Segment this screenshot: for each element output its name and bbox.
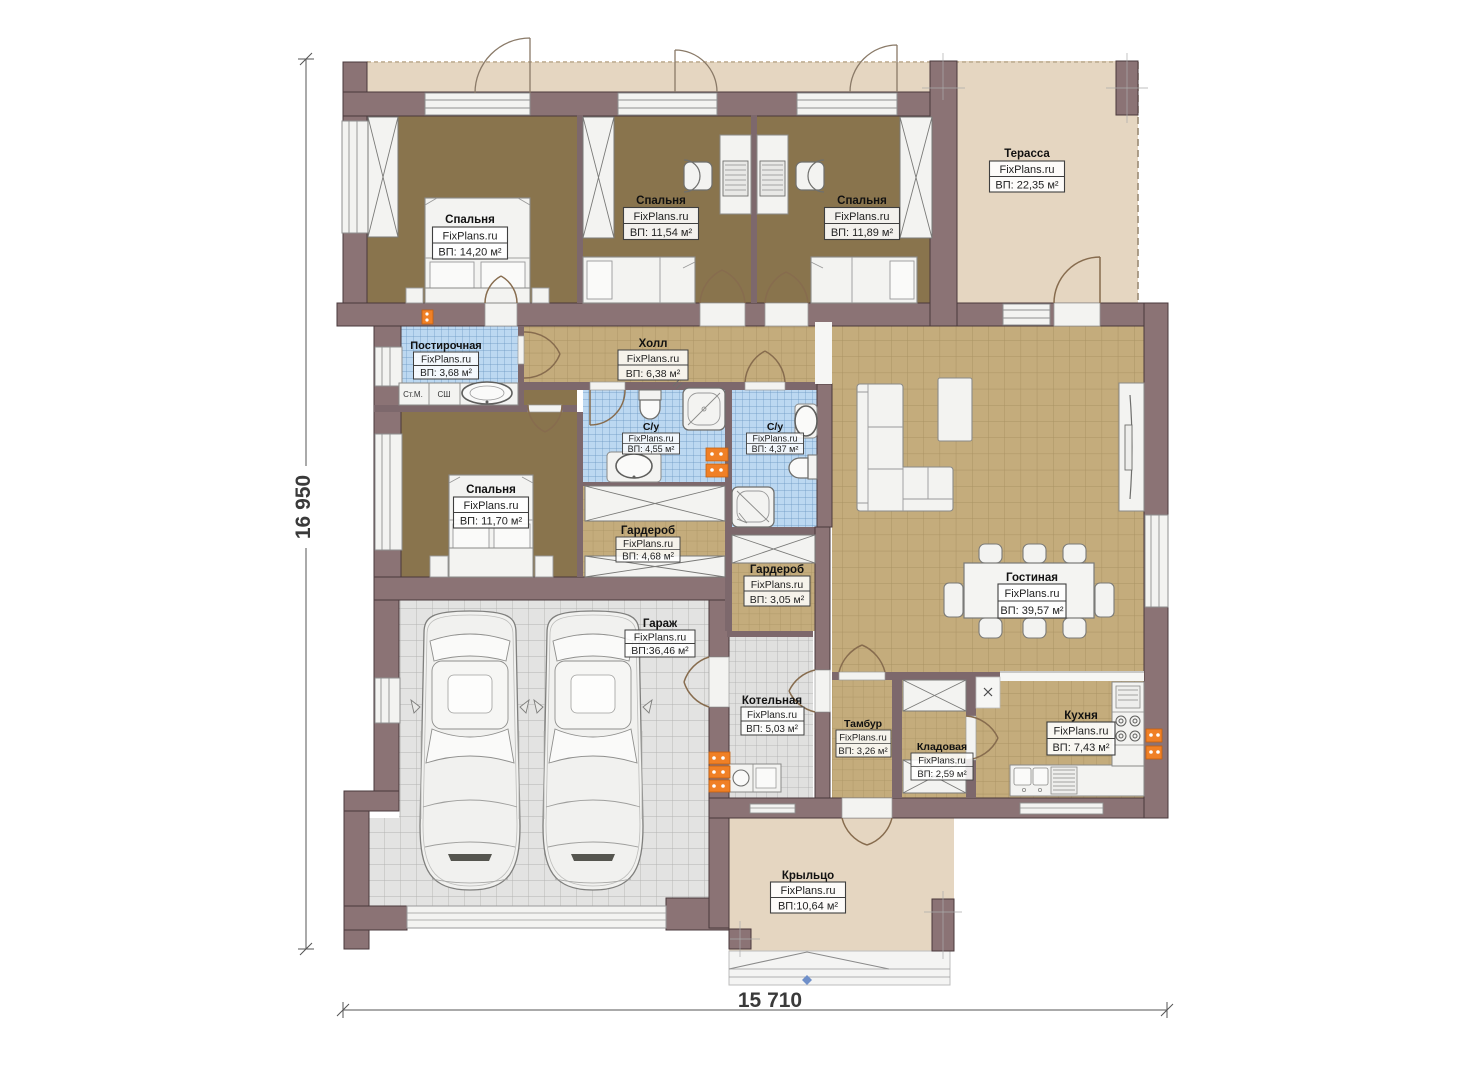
svg-text:С/у: С/у (643, 421, 660, 433)
svg-text:FixPlans.ru: FixPlans.ru (634, 632, 687, 644)
svg-text:ВП: 4,68 м²: ВП: 4,68 м² (622, 552, 675, 563)
svg-text:Гардероб: Гардероб (621, 525, 675, 537)
svg-text:СШ: СШ (437, 390, 450, 399)
svg-text:ВП: 3,68 м²: ВП: 3,68 м² (420, 368, 473, 379)
svg-text:ВП: 39,57 м²: ВП: 39,57 м² (1000, 605, 1064, 617)
svg-text:С/у: С/у (767, 421, 784, 433)
svg-text:FixPlans.ru: FixPlans.ru (780, 885, 835, 897)
svg-text:FixPlans.ru: FixPlans.ru (999, 164, 1054, 176)
svg-text:FixPlans.ru: FixPlans.ru (463, 500, 518, 512)
svg-text:Тамбур: Тамбур (844, 718, 882, 730)
svg-text:ВП: 3,26 м²: ВП: 3,26 м² (838, 746, 887, 757)
svg-text:FixPlans.ru: FixPlans.ru (834, 211, 889, 223)
svg-text:FixPlans.ru: FixPlans.ru (633, 211, 688, 223)
svg-text:Гардероб: Гардероб (750, 564, 804, 576)
svg-text:FixPlans.ru: FixPlans.ru (623, 539, 673, 550)
svg-text:ВП: 4,55 м²: ВП: 4,55 м² (628, 444, 675, 454)
svg-text:FixPlans.ru: FixPlans.ru (1053, 726, 1108, 738)
svg-text:Кухня: Кухня (1064, 710, 1098, 722)
svg-text:FixPlans.ru: FixPlans.ru (839, 733, 887, 744)
svg-text:ВП: 11,89 м²: ВП: 11,89 м² (831, 227, 894, 239)
svg-text:Кладовая: Кладовая (917, 741, 967, 753)
svg-text:FixPlans.ru: FixPlans.ru (421, 355, 471, 366)
svg-text:FixPlans.ru: FixPlans.ru (752, 434, 797, 444)
svg-text:ВП: 22,35 м²: ВП: 22,35 м² (995, 180, 1059, 192)
svg-text:ВП: 11,54 м²: ВП: 11,54 м² (630, 227, 693, 239)
svg-text:ВП: 4,37 м²: ВП: 4,37 м² (752, 444, 799, 454)
svg-text:Постирочная: Постирочная (410, 340, 481, 352)
svg-text:Ст.М.: Ст.М. (403, 390, 423, 399)
svg-text:FixPlans.ru: FixPlans.ru (751, 579, 804, 591)
svg-text:Крыльцо: Крыльцо (782, 870, 834, 882)
svg-text:Холл: Холл (639, 338, 668, 350)
svg-text:ВП: 5,03 м²: ВП: 5,03 м² (746, 724, 799, 735)
svg-text:FixPlans.ru: FixPlans.ru (628, 434, 673, 444)
svg-text:FixPlans.ru: FixPlans.ru (1004, 588, 1059, 600)
svg-text:16 950: 16 950 (292, 475, 315, 539)
svg-text:Спальня: Спальня (445, 214, 495, 226)
svg-text:Спальня: Спальня (466, 484, 516, 496)
svg-text:ВП:10,64 м²: ВП:10,64 м² (778, 901, 838, 913)
svg-text:ВП:36,46 м²: ВП:36,46 м² (631, 645, 689, 657)
svg-text:ВП: 7,43 м²: ВП: 7,43 м² (1052, 742, 1109, 754)
svg-text:ВП: 2,59 м²: ВП: 2,59 м² (917, 769, 966, 780)
svg-text:ВП: 6,38 м²: ВП: 6,38 м² (626, 368, 681, 380)
svg-text:ВП: 3,05 м²: ВП: 3,05 м² (750, 594, 805, 606)
svg-text:FixPlans.ru: FixPlans.ru (918, 756, 966, 767)
svg-text:Спальня: Спальня (636, 195, 686, 207)
svg-text:FixPlans.ru: FixPlans.ru (747, 710, 797, 721)
svg-text:ВП: 14,20 м²: ВП: 14,20 м² (438, 247, 502, 259)
svg-text:Спальня: Спальня (837, 195, 887, 207)
svg-text:Гостиная: Гостиная (1006, 572, 1058, 584)
svg-text:Котельная: Котельная (742, 695, 802, 707)
svg-text:Терасса: Терасса (1004, 148, 1050, 160)
svg-text:15 710: 15 710 (738, 989, 802, 1012)
svg-text:FixPlans.ru: FixPlans.ru (442, 231, 497, 243)
svg-text:FixPlans.ru: FixPlans.ru (627, 353, 680, 365)
svg-text:ВП: 11,70 м²: ВП: 11,70 м² (460, 516, 523, 528)
svg-text:Гараж: Гараж (643, 618, 678, 630)
